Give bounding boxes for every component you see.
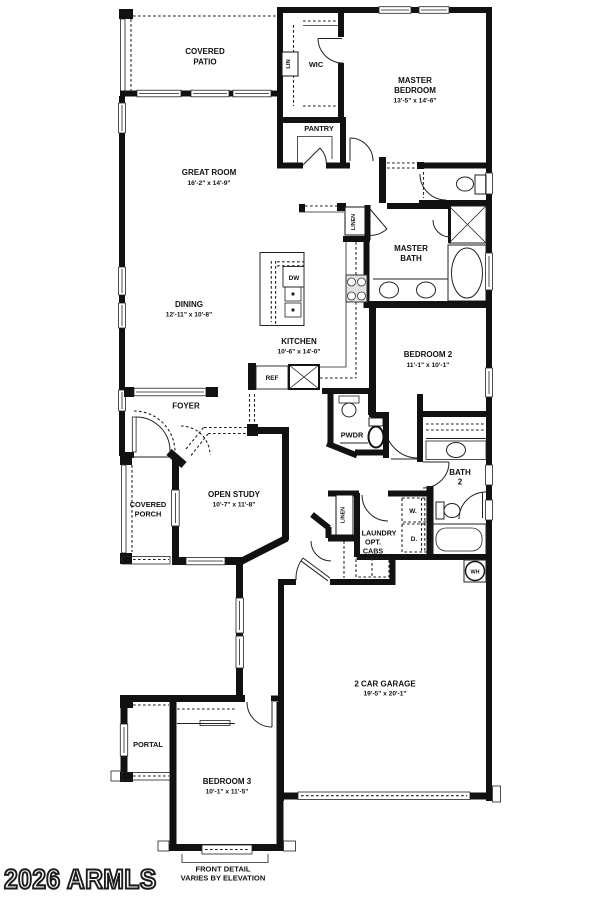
svg-text:PORTAL: PORTAL [133,740,163,749]
svg-text:19'-5" x 20'-1": 19'-5" x 20'-1" [363,691,406,698]
svg-text:BEDROOM 2: BEDROOM 2 [404,350,453,359]
svg-text:13'-5" x 14'-6": 13'-5" x 14'-6" [393,98,436,105]
svg-text:MASTER: MASTER [394,244,428,253]
svg-text:WH: WH [471,570,480,576]
svg-text:OPEN STUDY: OPEN STUDY [208,490,261,499]
svg-text:10'-7" x 11'-8": 10'-7" x 11'-8" [213,502,256,509]
svg-text:LINEN: LINEN [351,214,357,230]
svg-text:LIN: LIN [286,59,292,68]
svg-text:PATIO: PATIO [193,58,216,67]
svg-text:PORCH: PORCH [135,510,162,519]
svg-text:COVERED: COVERED [130,500,167,509]
svg-text:11'-1" x 10'-1": 11'-1" x 10'-1" [407,362,450,369]
svg-text:LAUNDRY: LAUNDRY [362,529,397,538]
svg-text:KITCHEN: KITCHEN [281,337,317,346]
svg-text:DW: DW [289,275,301,282]
svg-text:BATH: BATH [449,468,471,477]
svg-text:10'-6" x 14'-0": 10'-6" x 14'-0" [277,349,320,356]
svg-text:2 CAR GARAGE: 2 CAR GARAGE [354,680,416,689]
svg-text:COVERED: COVERED [185,47,225,56]
svg-text:WIC: WIC [309,60,324,69]
svg-text:REF: REF [266,375,279,382]
svg-text:2026 ARMLS: 2026 ARMLS [4,863,157,895]
svg-text:OPT.: OPT. [365,538,381,547]
svg-text:BEDROOM 3: BEDROOM 3 [203,777,252,786]
svg-text:16'-2" x 14'-9": 16'-2" x 14'-9" [187,180,230,187]
svg-text:D.: D. [411,536,418,543]
svg-text:PWDR: PWDR [341,431,364,440]
svg-text:10'-1" x 11'-5": 10'-1" x 11'-5" [206,789,249,796]
svg-text:MASTER: MASTER [398,76,432,85]
svg-text:DINING: DINING [175,300,203,309]
svg-text:BEDROOM: BEDROOM [394,86,436,95]
svg-text:FOYER: FOYER [172,402,200,411]
svg-text:VARIES BY ELEVATION: VARIES BY ELEVATION [181,874,266,883]
svg-text:PANTRY: PANTRY [304,124,334,133]
svg-text:W.: W. [409,508,417,515]
svg-text:2: 2 [458,478,463,487]
svg-text:12'-11" x 10'-8": 12'-11" x 10'-8" [166,312,212,319]
svg-text:LINEN: LINEN [341,507,347,523]
svg-text:GREAT ROOM: GREAT ROOM [182,168,237,177]
svg-text:BATH: BATH [400,254,422,263]
svg-text:FRONT DETAIL: FRONT DETAIL [195,865,250,874]
